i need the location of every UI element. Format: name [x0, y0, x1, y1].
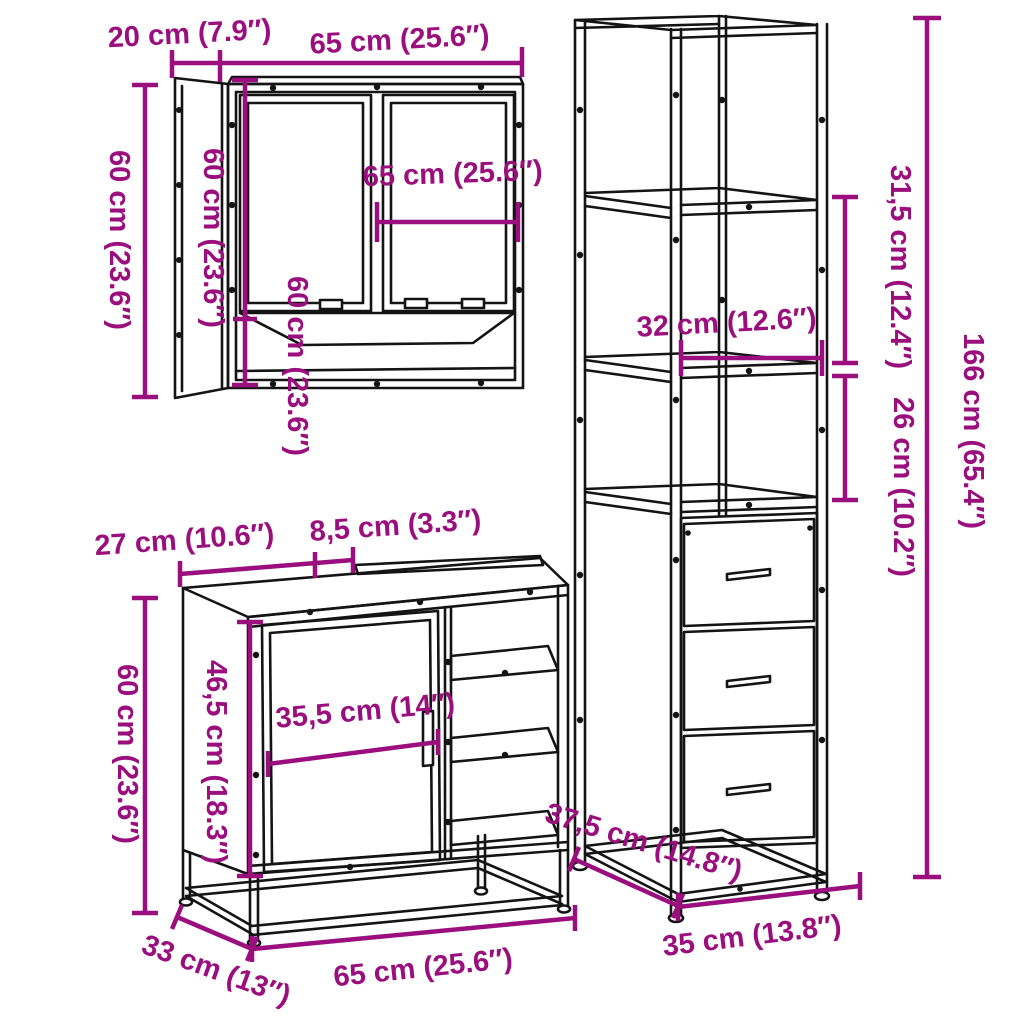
label-vanity-depth: 33 cm (13″): [137, 929, 294, 1012]
label-mirror-height-outer: 60 cm (23.6″): [103, 150, 135, 330]
label-vanity-width: 65 cm (25.6″): [332, 943, 514, 994]
tall-back-left-post: [575, 20, 585, 864]
dim-line-mirror-width-inner: [377, 202, 518, 242]
vanity-foot-back-right: [475, 888, 487, 895]
dimension-labels: 20 cm (7.9″) 65 cm (25.6″) 60 cm (23.6″)…: [94, 14, 989, 1012]
tall-top-rails: [575, 16, 817, 38]
vanity-divider: [445, 587, 558, 858]
label-vanity-door-height: 46,5 cm (18.3″): [200, 660, 232, 864]
label-tall-base-width: 35 cm (13.8″): [661, 909, 843, 963]
tall-front-right-post: [817, 24, 827, 894]
label-tall-middle-section: 26 cm (10.2″): [887, 397, 919, 577]
label-mirror-height-side: 60 cm (23.6″): [197, 148, 229, 328]
label-tall-upper-section: 31,5 cm (12.4″): [884, 165, 916, 369]
label-vanity-top-recess: 8,5 cm (3.3″): [309, 504, 483, 548]
vanity-door: [262, 611, 440, 872]
dim-line-vanity-door-width: [268, 729, 438, 777]
label-tall-shelf-width: 32 cm (12.6″): [636, 302, 817, 343]
diagram-canvas: 20 cm (7.9″) 65 cm (25.6″) 60 cm (23.6″)…: [0, 0, 1024, 1024]
dim-line-tall-middle-section: [832, 376, 858, 500]
label-mirror-height-inner: 60 cm (23.6″): [281, 276, 313, 456]
tall-cabinet: [573, 16, 829, 922]
mirror-door-right: [383, 95, 514, 311]
furniture-dimension-diagram: 20 cm (7.9″) 65 cm (25.6″) 60 cm (23.6″)…: [0, 0, 1024, 1024]
label-mirror-width-inner: 65 cm (25.6″): [362, 155, 543, 193]
tall-shelf-3: [585, 484, 817, 514]
mirror-open-shelf: [236, 313, 515, 371]
dim-line-tall-upper-section: [832, 197, 858, 363]
tall-shelf-1: [585, 188, 817, 218]
vanity-foot-front-right: [558, 906, 570, 913]
dim-line-vanity-door-height: [237, 622, 263, 876]
label-vanity-top-depth: 27 cm (10.6″): [94, 518, 276, 562]
label-tall-total-height: 166 cm (65.4″): [957, 333, 989, 529]
tall-front-left-post: [671, 29, 681, 916]
label-vanity-height: 60 cm (23.6″): [111, 664, 143, 844]
label-mirror-depth-top: 20 cm (7.9″): [107, 14, 272, 55]
vanity-foot-back-left: [180, 899, 192, 906]
label-mirror-width-top: 65 cm (25.6″): [309, 19, 490, 60]
